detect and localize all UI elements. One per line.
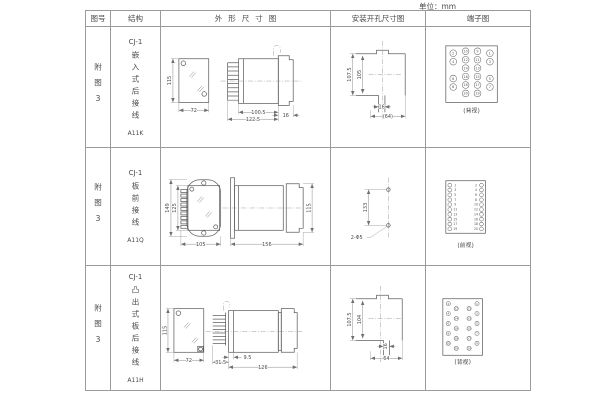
dim-overall-width: 64 <box>383 356 389 362</box>
terminal-number: 13 <box>467 317 471 321</box>
install-cell-a11k: 107.5 105 16 (64) <box>331 27 426 148</box>
dim-depth: 126 <box>258 365 267 371</box>
structure-label: 嵌入式后接线 <box>130 51 141 123</box>
terminal-number: 20 <box>474 227 478 231</box>
terminal-number: 11 <box>453 208 457 212</box>
fig-no-label: 附图3 <box>93 183 104 231</box>
terminal-number: 19 <box>467 346 471 350</box>
terminal-circle <box>480 212 484 216</box>
dim-height: 115 <box>167 76 173 85</box>
dim-body-height: 125 <box>172 203 178 212</box>
terminal-cell-a11k: (背视) 1091211141316151817201921436587 <box>426 27 530 148</box>
dim-step: 9.5 <box>244 355 252 361</box>
terminal-circle <box>480 198 484 202</box>
terminal-circle <box>480 183 484 187</box>
dim-height: 115 <box>162 326 168 335</box>
terminal-circle <box>448 203 452 207</box>
terminal-circle <box>448 208 452 212</box>
terminal-circle <box>480 203 484 207</box>
dim-depth-overall: 122.5 <box>246 117 260 123</box>
outline-cell-a11k: 115 72 100.5 122.5 16 <box>161 27 331 148</box>
terminal-number: 14 <box>474 212 478 216</box>
terminal-number: 15 <box>453 217 457 221</box>
terminal-number: 13 <box>475 66 479 70</box>
terminal-circle <box>448 188 452 192</box>
terminal-number: 7 <box>489 85 491 89</box>
terminal-number: 9 <box>476 341 478 345</box>
fig-no-label: 附图3 <box>93 304 104 352</box>
series-label: CJ-1 <box>129 169 143 177</box>
fig-no-label: 附图3 <box>93 63 104 111</box>
terminal-number: 1 <box>476 302 478 306</box>
terminal-number: 14 <box>463 66 467 70</box>
header-terminal: 端子图 <box>426 11 530 27</box>
terminal-caption: (前视) <box>457 241 474 249</box>
model-code: A11K <box>128 130 144 137</box>
terminal-circle <box>480 193 484 197</box>
terminal-number: 6 <box>447 322 449 326</box>
terminal-number: 18 <box>454 336 458 340</box>
terminal-number: 18 <box>463 83 467 87</box>
terminal-number: 16 <box>463 75 467 79</box>
outline-cell-a11h: 115 72 31.5 9.5 126 <box>161 266 331 390</box>
dim-holes: 2-Φ5 <box>351 235 363 241</box>
dim-height: 149 <box>165 203 171 212</box>
dim-slot-width: 16 <box>379 105 385 111</box>
terminal-number: 2 <box>447 302 449 306</box>
terminal-number: 17 <box>467 336 471 340</box>
terminal-number: 12 <box>463 58 467 62</box>
dim-pin-depth: 31.5 <box>215 360 226 366</box>
terminal-diagram-a11q: (前视) 1234567891011121314151617181920 <box>426 148 530 265</box>
terminal-number: 2 <box>452 51 454 55</box>
dim-width: 72 <box>186 358 192 364</box>
dim-end-height: 115 <box>306 203 312 212</box>
structure-cell-a11k: CJ-1 嵌入式后接线 A11K <box>111 27 161 148</box>
terminal-number: 20 <box>454 346 458 350</box>
terminal-circle <box>480 188 484 192</box>
terminal-number: 7 <box>476 332 478 336</box>
header-structure: 结构 <box>111 11 161 27</box>
terminal-number: 17 <box>475 83 479 87</box>
structure-label: 凸出式板后接线 <box>130 286 141 370</box>
model-code: A11Q <box>127 237 143 244</box>
structure-cell-a11h: CJ-1 凸出式板后接线 A11H <box>111 266 161 390</box>
terminal-number: 14 <box>454 317 458 321</box>
terminal-number: 13 <box>453 212 457 216</box>
header-install: 安装开孔尺寸图 <box>331 11 426 27</box>
dim-outer-height: 107.5 <box>347 312 353 326</box>
install-drawing-a11h: 107.5 104 16 64 <box>331 266 425 390</box>
terminal-cell-a11q: (前视) 1234567891011121314151617181920 <box>426 148 530 266</box>
dim-outer-height: 107.5 <box>347 68 353 82</box>
install-drawing-a11q: 133 2-Φ5 <box>331 148 425 265</box>
terminal-number: 10 <box>463 50 467 54</box>
terminal-number: 19 <box>453 227 457 231</box>
terminal-number: 4 <box>447 312 449 316</box>
terminal-number: 7 <box>454 198 456 202</box>
fig-no-cell: 附图3 <box>86 27 111 148</box>
terminal-number: 10 <box>446 341 450 345</box>
terminal-number: 16 <box>474 217 478 221</box>
dim-depth: 156 <box>262 242 271 248</box>
terminal-number: 5 <box>454 193 456 197</box>
terminal-diagram-a11k: (背视) 1091211141316151817201921436587 <box>426 27 530 147</box>
terminal-number: 4 <box>452 60 454 64</box>
terminal-number: 4 <box>475 188 477 192</box>
terminal-number: 3 <box>489 60 491 64</box>
datasheet-page: 单位：mm 图号 结构 外形尺寸图 安装开孔尺寸图 端子图 附图3 CJ-1 嵌… <box>0 0 600 400</box>
fig-no-cell: 附图3 <box>86 266 111 390</box>
terminal-number: 12 <box>454 307 458 311</box>
series-label: CJ-1 <box>129 38 143 46</box>
series-label: CJ-1 <box>129 273 143 281</box>
dim-flange: 16 <box>283 113 289 119</box>
terminal-circle <box>448 212 452 216</box>
structure-label: 板前接线 <box>130 182 141 230</box>
terminal-number: 20 <box>463 92 467 96</box>
install-drawing-a11k: 107.5 105 16 (64) <box>331 27 425 147</box>
terminal-number: 11 <box>475 58 479 62</box>
header-fig-no: 图号 <box>86 11 111 27</box>
terminal-circle <box>480 208 484 212</box>
header-outline: 外形尺寸图 <box>161 11 331 27</box>
terminal-number: 5 <box>489 77 491 81</box>
fig-no-cell: 附图3 <box>86 148 111 266</box>
terminal-number: 16 <box>454 327 458 331</box>
terminal-diagram-a11h: (背视) 2112114314136516158718171092019 <box>426 266 530 390</box>
terminal-circle <box>448 198 452 202</box>
terminal-number: 3 <box>454 188 456 192</box>
install-cell-a11h: 107.5 104 16 64 <box>331 266 426 390</box>
spec-table: 图号 结构 外形尺寸图 安装开孔尺寸图 端子图 附图3 CJ-1 嵌入式后接线 … <box>85 10 531 391</box>
dim-slot-width: 16 <box>383 343 389 349</box>
terminal-cell-a11h: (背视) 2112114314136516158718171092019 <box>426 266 530 390</box>
terminal-number: 1 <box>489 51 491 55</box>
terminal-circle <box>480 217 484 221</box>
terminal-number: 3 <box>476 312 478 316</box>
outline-drawing-a11k: 115 72 100.5 122.5 16 <box>161 27 330 147</box>
terminal-number: 8 <box>475 198 477 202</box>
terminal-circle <box>448 227 452 231</box>
dim-width: 105 <box>196 242 205 248</box>
terminal-number: 5 <box>476 322 478 326</box>
terminal-number: 6 <box>475 193 477 197</box>
terminal-number: 15 <box>475 75 479 79</box>
dim-width: 72 <box>191 108 197 114</box>
outline-drawing-a11q: 149 125 105 156 115 <box>161 148 330 265</box>
terminal-number: 15 <box>467 327 471 331</box>
model-code: A11H <box>127 377 143 384</box>
dim-hole-spacing: 133 <box>363 203 369 212</box>
terminal-number: 17 <box>453 222 457 226</box>
terminal-number: 8 <box>447 332 449 336</box>
dim-overall-width: (64) <box>383 114 393 120</box>
terminal-number: 11 <box>467 307 471 311</box>
dim-inner-height: 104 <box>357 315 363 324</box>
terminal-circle <box>480 222 484 226</box>
terminal-number: 9 <box>454 203 456 207</box>
terminal-number: 8 <box>452 85 454 89</box>
terminal-number: 1 <box>454 183 456 187</box>
dim-inner-height: 105 <box>357 70 363 79</box>
terminal-number: 18 <box>474 222 478 226</box>
terminal-caption: (背视) <box>463 106 480 114</box>
outline-drawing-a11h: 115 72 31.5 9.5 126 <box>161 266 330 390</box>
terminal-number: 19 <box>475 92 479 96</box>
terminal-circle <box>448 222 452 226</box>
terminal-circle <box>448 193 452 197</box>
structure-cell-a11q: CJ-1 板前接线 A11Q <box>111 148 161 266</box>
terminal-caption: (背视) <box>454 358 471 366</box>
terminal-number: 12 <box>474 208 478 212</box>
terminal-number: 6 <box>452 77 454 81</box>
terminal-circle <box>448 217 452 221</box>
terminal-number: 2 <box>475 183 477 187</box>
outline-cell-a11q: 149 125 105 156 115 <box>161 148 331 266</box>
dim-depth-body: 100.5 <box>251 110 265 116</box>
terminal-circle <box>448 183 452 187</box>
install-cell-a11q: 133 2-Φ5 <box>331 148 426 266</box>
terminal-number: 9 <box>476 50 478 54</box>
terminal-circle <box>480 227 484 231</box>
terminal-number: 10 <box>474 203 478 207</box>
